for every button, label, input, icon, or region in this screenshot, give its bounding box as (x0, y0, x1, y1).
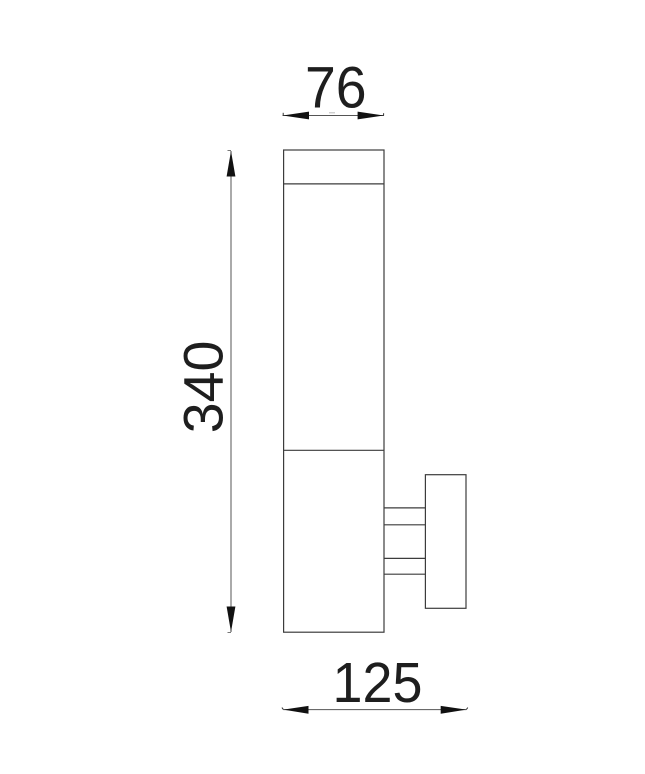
svg-text:76: 76 (305, 55, 367, 121)
svg-text:340: 340 (173, 341, 235, 434)
svg-text:125: 125 (333, 651, 423, 714)
